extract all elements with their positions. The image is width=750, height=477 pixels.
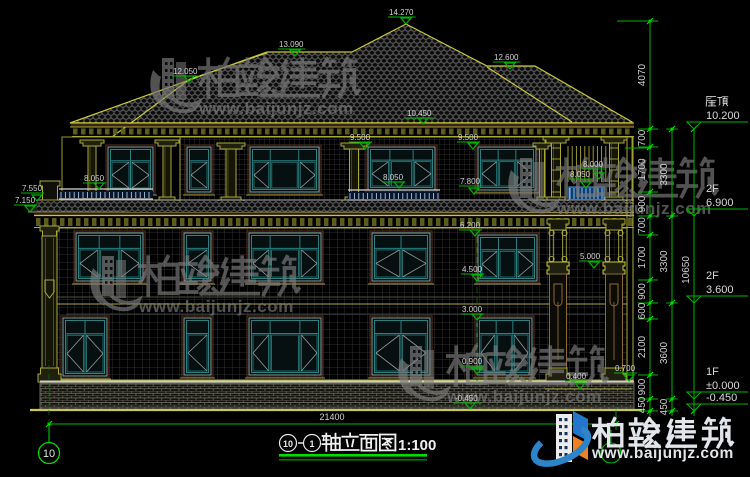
svg-text:10: 10 [283,439,293,449]
svg-text:8.050: 8.050 [383,173,404,182]
svg-text:7.550: 7.550 [22,184,43,193]
svg-text:1: 1 [309,439,314,449]
svg-text:450: 450 [637,396,648,413]
svg-text:450: 450 [659,398,670,415]
svg-text:10.200: 10.200 [706,110,740,122]
svg-text:7.150: 7.150 [15,196,36,205]
svg-text:www.baijunjz.com: www.baijunjz.com [591,445,734,462]
svg-text:700: 700 [637,217,648,234]
svg-text:4.500: 4.500 [462,265,483,274]
svg-text:3600: 3600 [659,341,670,364]
svg-text:5.000: 5.000 [580,252,601,261]
svg-text:4070: 4070 [637,63,648,86]
svg-text:3.000: 3.000 [462,305,483,314]
svg-text:600: 600 [637,302,648,319]
svg-text:±0.000: ±0.000 [706,380,740,392]
svg-text:900: 900 [637,195,648,212]
svg-text:13.090: 13.090 [279,40,304,49]
svg-text:1F: 1F [706,366,719,378]
svg-text:21400: 21400 [319,412,344,422]
svg-text:10650: 10650 [681,256,692,284]
svg-text:0.700: 0.700 [615,364,636,373]
svg-text:0.900: 0.900 [462,357,483,366]
svg-text:1700: 1700 [637,246,648,269]
svg-text:9.500: 9.500 [458,133,479,142]
svg-text:1:100: 1:100 [398,437,436,454]
svg-text:2F: 2F [706,183,719,195]
svg-text:12.050: 12.050 [173,67,198,76]
svg-text:900: 900 [637,378,648,395]
svg-text:900: 900 [637,283,648,300]
svg-text:8.000: 8.000 [583,160,604,169]
svg-text:-0.450: -0.450 [706,392,737,404]
svg-text:3.600: 3.600 [706,284,734,296]
svg-text:-0.450: -0.450 [455,394,478,403]
svg-text:14.270: 14.270 [389,8,414,17]
svg-text:7.800: 7.800 [460,177,481,186]
svg-text:6.200: 6.200 [460,221,481,230]
svg-text:2100: 2100 [637,335,648,358]
svg-text:2F: 2F [706,270,719,282]
svg-text:6.900: 6.900 [706,197,734,209]
svg-text:3300: 3300 [659,163,670,186]
svg-text:3300: 3300 [659,250,670,273]
svg-text:9.500: 9.500 [350,133,371,142]
svg-text:8.050: 8.050 [570,170,591,179]
svg-text:0.400: 0.400 [566,372,587,381]
svg-text:8.050: 8.050 [84,174,105,183]
svg-text:12.600: 12.600 [494,53,519,62]
svg-text:700: 700 [637,129,648,146]
svg-text:1700: 1700 [637,158,648,181]
svg-text:10: 10 [43,448,55,460]
svg-text:10.450: 10.450 [407,109,432,118]
